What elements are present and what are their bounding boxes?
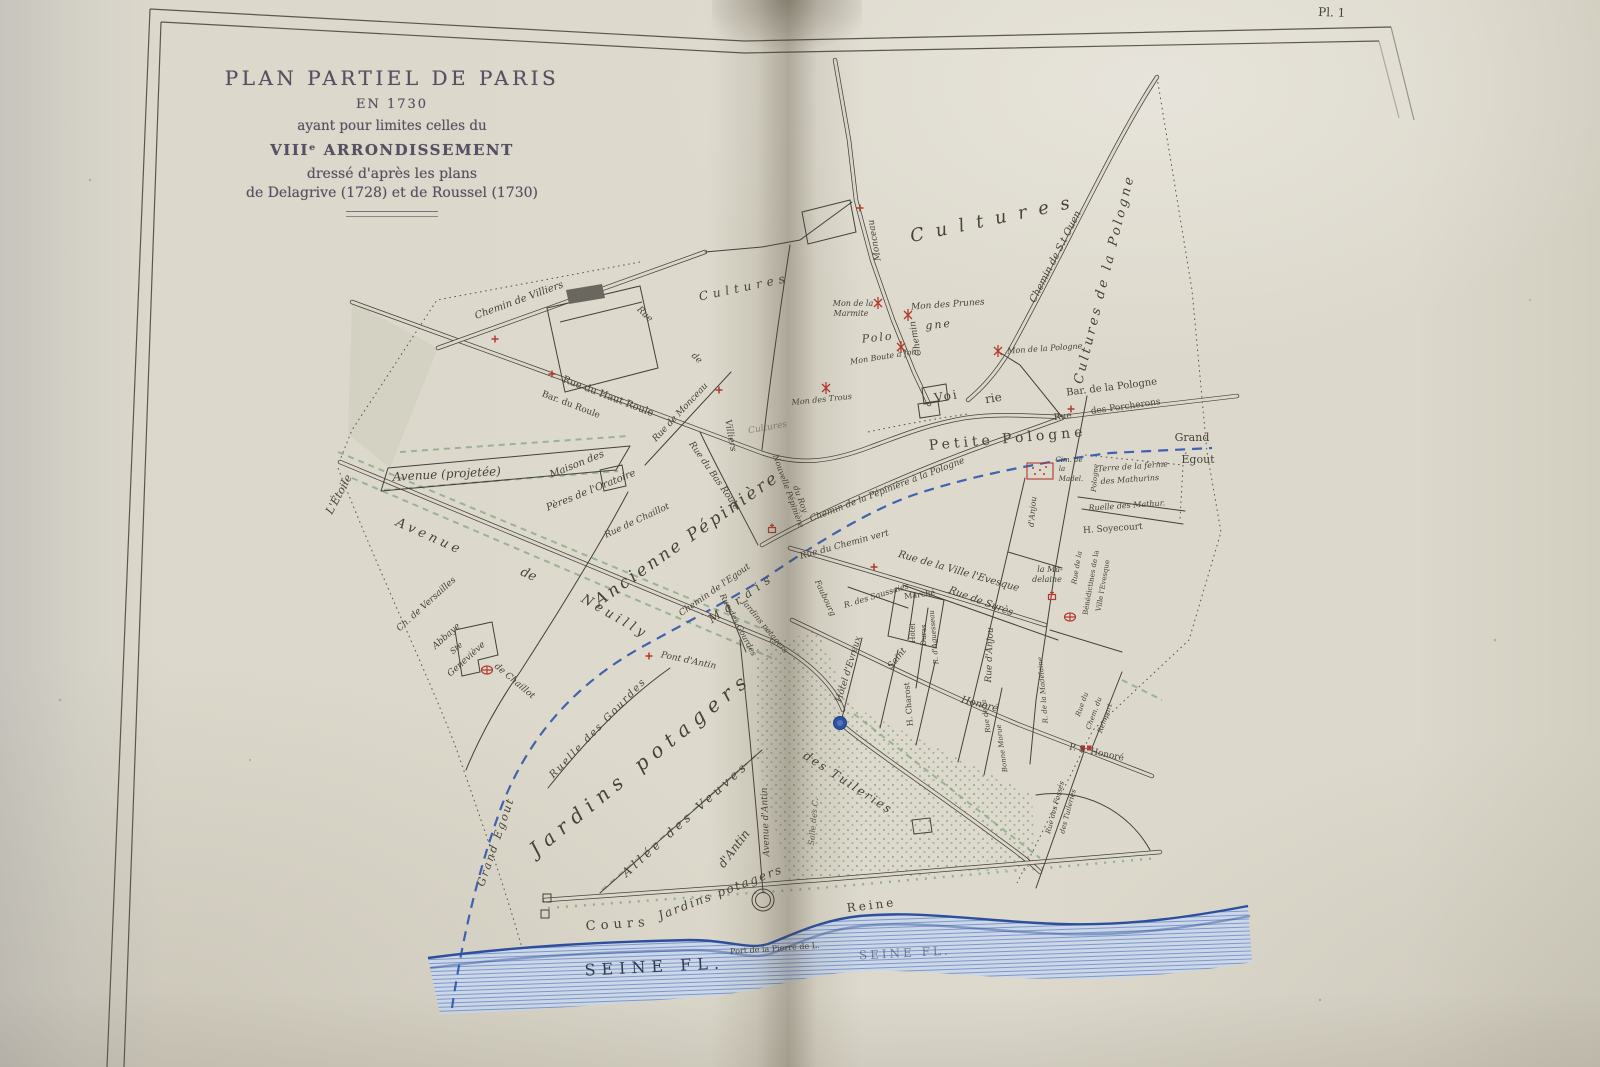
book-photo: Pl. 1: [0, 0, 1600, 1067]
windmill-icon: [822, 382, 830, 394]
map-label: Grand: [1175, 431, 1210, 444]
map-label: Cultures: [698, 271, 791, 304]
map-label: Bonne Morue: [995, 724, 1010, 774]
plate-number: Pl. 1: [1318, 5, 1346, 20]
map-label: Marmite: [833, 309, 869, 318]
map-label: Rue: [634, 304, 655, 324]
rond-point: [756, 893, 771, 908]
abbey-icon: [1065, 613, 1076, 621]
map-label: Égout: [1181, 452, 1215, 466]
map-label: R. des Saussaies: [842, 581, 910, 610]
road: [916, 608, 928, 688]
map-label: Rue de la: [1070, 551, 1084, 586]
map-label: Chemin de S.t Ouen: [1028, 209, 1084, 305]
map-label: Terre de la ferme: [1097, 460, 1168, 474]
road: [958, 478, 1025, 762]
windmill-icon: [994, 345, 1002, 357]
map-label: Polo: [860, 329, 894, 345]
map-label: Ch. de Versailles: [395, 575, 459, 634]
map-label: Reine: [846, 895, 897, 915]
building-dark: [566, 284, 605, 304]
map-title-year: EN 1730: [222, 97, 562, 112]
map-label: Duras: [920, 624, 928, 646]
frame-right-inner: [1379, 41, 1399, 118]
map-label: Cultures: [747, 420, 788, 437]
map-label: Maison des: [547, 449, 605, 481]
map-label: Saint: [886, 646, 909, 671]
map-label: Villiers: [722, 419, 737, 453]
map-label: Chemin de Villiers: [473, 279, 565, 321]
map-label: L'Étoile: [322, 471, 355, 517]
map-label: Ste: [448, 640, 464, 656]
map-label: delaine: [1032, 575, 1062, 584]
abbey-icon: [482, 666, 493, 674]
map-label: Mon des Prunes: [910, 297, 986, 312]
map-label: Grand Egout: [474, 796, 517, 889]
title-underline: [346, 211, 438, 217]
map-label: Pologne: [1090, 463, 1101, 493]
road: [999, 352, 1062, 417]
map-label: Cours: [585, 915, 650, 934]
map-label: Rue d'Anjou: [984, 627, 996, 684]
map-label: Rue de Chaillot: [602, 502, 671, 541]
map-label: Madel.: [1058, 475, 1083, 483]
map-label: Honoré: [959, 694, 999, 714]
map-label: la Ma-: [1037, 565, 1063, 574]
map-label: Cim. de: [1055, 456, 1082, 464]
map-label: P. S. Honoré: [1068, 741, 1125, 763]
frame-top-inner: [161, 22, 1379, 53]
map-subtitle: ayant pour limites celles du: [222, 118, 562, 134]
map-arrondissement: VIIIᵉ ARRONDISSEMENT: [222, 141, 562, 159]
map-label: R. de la Madelaine: [1036, 657, 1050, 725]
church-icon: [769, 524, 776, 533]
map-label: d'Antin: [715, 827, 753, 870]
map-label: Ruelle des Mathur.: [1087, 498, 1165, 512]
map-label: R. d'Aguesseau: [928, 609, 941, 665]
map-label: gne: [925, 317, 953, 333]
map-label: Chemin de la Pépinière à la Pologne: [808, 455, 966, 524]
map-source-line1: dressé d'après les plans: [222, 166, 562, 182]
map-title: PLAN PARTIEL DE PARIS: [222, 66, 562, 90]
map-label: des Porcherons: [1090, 397, 1161, 417]
map-label: Cultures: [908, 190, 1083, 247]
cross-icon: [492, 336, 499, 343]
map-label: Mon de la: [832, 299, 874, 308]
road: [645, 372, 731, 465]
map-label: Marais: [705, 570, 778, 627]
frame-right-outer: [1391, 27, 1414, 120]
map-label: Voi: [932, 387, 960, 405]
map-title-block: PLAN PARTIEL DE PARIS EN 1730 ayant pour…: [222, 66, 562, 217]
map-label: Mon des Trous: [790, 392, 852, 407]
map-label: Rue du: [1074, 691, 1091, 719]
map-label: de: [518, 565, 539, 585]
map-label: H. Soyecourt: [1083, 522, 1144, 536]
road: [352, 302, 1237, 461]
frame-top-outer: [150, 9, 1391, 41]
map-label: Hôtel: [909, 622, 917, 642]
map-label: Pont d'Antin: [659, 650, 717, 672]
map-label: de: [689, 351, 704, 366]
road: [352, 302, 1237, 461]
cross-icon: [871, 564, 878, 571]
map-label: Petite Pologne: [928, 424, 1087, 454]
map-label: H. Charost: [902, 681, 915, 726]
map-source-line2: de Delagrive (1728) et de Roussel (1730): [222, 185, 562, 201]
church-icon: [1049, 591, 1056, 600]
seine-river: [428, 906, 1252, 1014]
map-label: Rue: [1053, 411, 1072, 423]
map-label: des Mathurins: [1100, 473, 1159, 486]
frame-left-inner: [124, 22, 161, 1067]
windmill-icon: [874, 297, 882, 309]
map-label: Rue du Chemin vert: [798, 528, 890, 562]
pond-icon: [834, 717, 847, 730]
map-label: la: [1059, 465, 1065, 473]
building: [802, 200, 856, 244]
map-label: rie: [984, 390, 1003, 406]
map-label: de Chaillot: [492, 662, 537, 702]
frame-left-outer: [107, 9, 150, 1067]
map-label: Mon de la Pologne: [1006, 341, 1083, 355]
map-label: d'Anjou: [1027, 496, 1039, 527]
road: [705, 202, 852, 252]
cross-icon: [646, 653, 653, 660]
map-label: Faubourg: [813, 577, 838, 617]
